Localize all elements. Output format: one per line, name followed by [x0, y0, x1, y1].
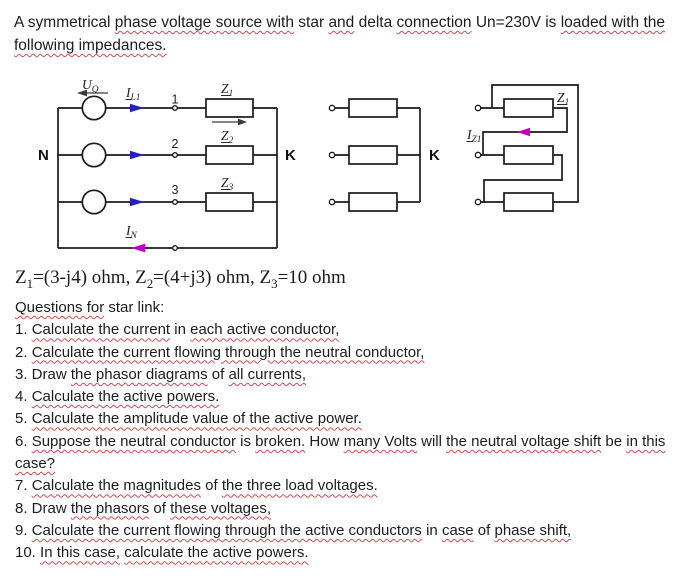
statement-line-2: following impedances. — [14, 34, 665, 57]
star-load-point-label: K — [429, 147, 440, 164]
line2-current-arrow-icon — [130, 151, 144, 159]
impedance-box-z2 — [206, 146, 253, 164]
terminal-2 — [329, 152, 334, 157]
z1-current-arrowhead-icon — [238, 119, 247, 126]
line1-current-label: IL1 — [125, 85, 141, 103]
problem-statement: A symmetrical phase voltage source with … — [14, 11, 665, 57]
terminal-1 — [329, 105, 334, 110]
terminal-1 — [475, 105, 480, 110]
node2-number: 2 — [172, 137, 179, 151]
delta-current-label: IZ1 — [466, 127, 482, 145]
neutral-terminal-label: N — [38, 147, 49, 164]
neutral-current-arrow-icon — [131, 244, 145, 252]
question-5: 5. Calculate the amplitude value of the … — [15, 408, 665, 430]
delta-current-arrow-icon — [517, 128, 530, 136]
question-2: 2. Calculate the current flowing through… — [15, 342, 665, 364]
node-3 — [173, 200, 178, 205]
voltage-source-3 — [82, 190, 105, 213]
terminal-3 — [329, 199, 334, 204]
question-9: 9. Calculate the current flowing through… — [15, 520, 665, 542]
impedance-box-z3 — [206, 193, 253, 211]
node1-number: 1 — [172, 93, 179, 107]
circuit-diagram: UQ IL1 Z1 Z2 Z3 IN 1 2 3 N K K — [0, 62, 700, 262]
voltage-source-1 — [82, 96, 105, 119]
delta-z1-label: Z1 — [557, 90, 569, 108]
star-point-label: K — [285, 147, 296, 164]
load-box-3 — [349, 193, 397, 211]
line3-current-arrow-icon — [130, 198, 144, 206]
delta-box-3 — [504, 193, 553, 211]
load-box-1 — [349, 99, 397, 117]
voltage-source-2 — [82, 143, 105, 166]
statement-line-1: A symmetrical phase voltage source with … — [14, 11, 665, 34]
question-10: 10. In this case, calculate the active p… — [15, 542, 665, 564]
questions-section: Questions for star link: 1. Calculate th… — [15, 297, 665, 565]
terminal-3 — [475, 199, 480, 204]
delta-box-1 — [504, 99, 553, 117]
question-6: 6. Suppose the neutral conductor is brok… — [15, 431, 665, 453]
line1-current-arrow-icon — [130, 104, 144, 112]
wires — [58, 108, 277, 248]
question-7: 7. Calculate the magnitudes of the three… — [15, 475, 665, 497]
node-neutral — [173, 246, 178, 251]
z1-label: Z1 — [221, 81, 233, 99]
document-page: { "colors": { "squiggle": "#c94f4f", "bl… — [0, 0, 700, 586]
load-box-2 — [349, 146, 397, 164]
question-8: 8. Draw the phasors of these voltages, — [15, 498, 665, 520]
question-4: 4. Calculate the active powers. — [15, 386, 665, 408]
delta-box-2 — [504, 146, 553, 164]
question-6-wrap: case? — [15, 453, 665, 475]
delta-load-circuit: Z1 IZ1 — [466, 85, 578, 211]
source-star-circuit: UQ IL1 Z1 Z2 Z3 IN 1 2 3 N K — [38, 77, 296, 252]
z2-label: Z2 — [221, 128, 234, 146]
question-1: 1. Calculate the current in each active … — [15, 319, 665, 341]
star-load-circuit: K — [329, 99, 440, 211]
impedance-values: Z1=(3-j4) ohm, Z2=(4+j3) ohm, Z3=10 ohm — [15, 267, 346, 292]
terminal-2 — [475, 152, 480, 157]
question-3: 3. Draw the phasor diagrams of all curre… — [15, 364, 665, 386]
node-2 — [173, 153, 178, 158]
neutral-current-label: IN — [125, 223, 138, 241]
z3-label: Z3 — [221, 175, 234, 193]
node3-number: 3 — [172, 183, 179, 197]
impedance-box-z1 — [206, 99, 253, 117]
questions-heading: Questions for star link: — [15, 297, 665, 319]
